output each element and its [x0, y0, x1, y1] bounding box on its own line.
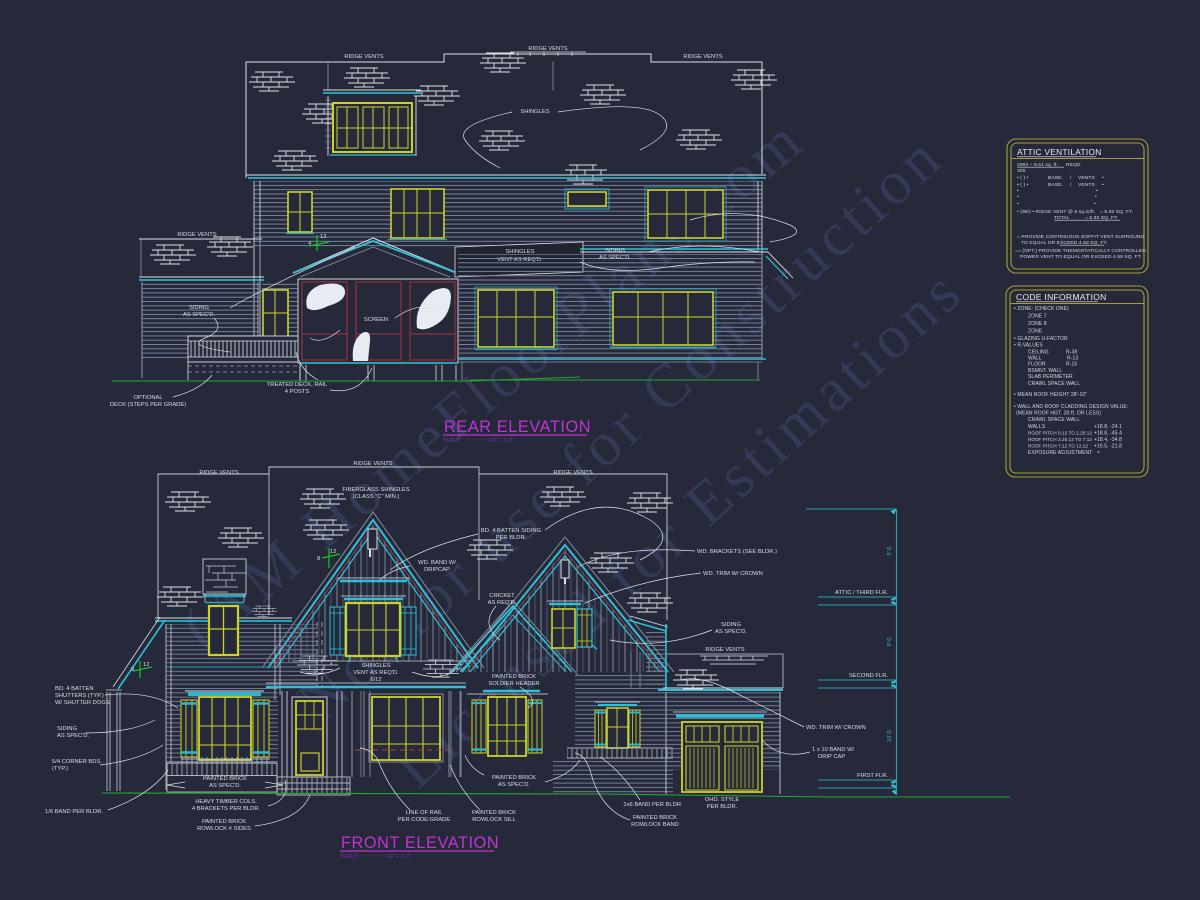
svg-text:FIRST FLR.: FIRST FLR.: [857, 773, 888, 779]
svg-text:R-15: R-15: [1066, 362, 1077, 368]
svg-text:+18.4, -34.8: +18.4, -34.8: [1094, 437, 1122, 443]
svg-text:WD. BAND W/: WD. BAND W/: [418, 560, 456, 566]
svg-text:SIDING: SIDING: [57, 726, 77, 732]
svg-text:PAINTED BRICK: PAINTED BRICK: [203, 776, 247, 782]
svg-text:WALLS: WALLS: [1028, 424, 1046, 430]
svg-text:ZONE 7: ZONE 7: [1028, 314, 1047, 320]
svg-text:300: 300: [1017, 168, 1026, 174]
svg-text:4 BRACKETS PER BLDR.: 4 BRACKETS PER BLDR.: [192, 806, 261, 812]
svg-text:W/ SHUTTER DOGS: W/ SHUTTER DOGS: [55, 700, 110, 706]
svg-text:+18.8, -45.4: +18.8, -45.4: [1094, 431, 1122, 437]
svg-text:SIDING: SIDING: [721, 622, 741, 628]
svg-text:•: •: [1017, 202, 1019, 207]
svg-text:ROOF PITCH 2.25:12 TO 7:12: ROOF PITCH 2.25:12 TO 7:12: [1028, 437, 1092, 442]
svg-text:ATTIC / THIRD FLR.: ATTIC / THIRD FLR.: [835, 590, 888, 596]
svg-text:PAINTED BRICK: PAINTED BRICK: [492, 674, 536, 680]
svg-text:CRICKET: CRICKET: [489, 593, 515, 599]
svg-text:+18.8, -24.1: +18.8, -24.1: [1094, 424, 1122, 430]
svg-text:8: 8: [317, 556, 320, 562]
svg-text:VENTS: VENTS: [1078, 175, 1095, 181]
svg-text:WD. TRIM W/ CROWN: WD. TRIM W/ CROWN: [703, 571, 763, 577]
svg-text:• R-VALUES: • R-VALUES: [1014, 343, 1043, 349]
svg-text:ROOF PITCH 0:12 TO 2.25:12: ROOF PITCH 0:12 TO 2.25:12: [1028, 431, 1092, 436]
svg-text:SHINGLES: SHINGLES: [520, 109, 549, 115]
svg-text:DRIP CAP: DRIP CAP: [818, 754, 845, 760]
svg-text:9'-0: 9'-0: [887, 638, 893, 647]
svg-text:AS SPEC'D.: AS SPEC'D.: [183, 312, 215, 318]
svg-text:•: •: [1094, 202, 1096, 207]
svg-text:RIDGE VENTS: RIDGE VENTS: [353, 461, 392, 467]
svg-text:9: 9: [131, 667, 134, 673]
svg-text:(TYP.): (TYP.): [52, 766, 68, 772]
svg-text:• MEAN ROOF HEIGHT 28'-10": • MEAN ROOF HEIGHT 28'-10": [1014, 392, 1087, 398]
svg-text:• ( ) •: • ( ) •: [1017, 175, 1029, 181]
svg-text:VENT AS REQ'D.: VENT AS REQ'D.: [353, 670, 399, 676]
svg-text:•: •: [1096, 189, 1098, 194]
svg-text:5/4 CORNER BDS.: 5/4 CORNER BDS.: [52, 759, 102, 765]
svg-text:ROWLOCK SILL: ROWLOCK SILL: [472, 817, 516, 823]
svg-text:(CLASS "C" MIN.): (CLASS "C" MIN.): [353, 494, 400, 500]
svg-text:PER BLDR.: PER BLDR.: [707, 804, 738, 810]
svg-text:CODE INFORMATION: CODE INFORMATION: [1016, 292, 1107, 302]
svg-text:TREATED DECK, RAIL: TREATED DECK, RAIL: [267, 382, 328, 388]
svg-text:ZONE: ZONE: [1028, 329, 1043, 335]
svg-text:SECOND FLR.: SECOND FLR.: [849, 673, 888, 679]
svg-text:PER BLDR.: PER BLDR.: [496, 535, 527, 541]
svg-text:BASE.: BASE.: [1048, 182, 1063, 188]
svg-text:BD. 4 BATTEN: BD. 4 BATTEN: [55, 686, 94, 692]
svg-text:REQD.: REQD.: [1066, 162, 1082, 168]
svg-text:PAINTED BRICK: PAINTED BRICK: [472, 810, 516, 816]
svg-text:RIDGE VENTS: RIDGE VENTS: [177, 232, 216, 238]
svg-text:POWER VENT TO EQUAL OR EXCEED: POWER VENT TO EQUAL OR EXCEED 4.58 SQ. F…: [1020, 254, 1142, 260]
svg-text:SLAB PERIMETER: SLAB PERIMETER: [1028, 374, 1073, 380]
svg-text:DRIPCAP: DRIPCAP: [424, 567, 450, 573]
svg-text:SHINGLES: SHINGLES: [361, 663, 390, 669]
svg-text:•: •: [1102, 183, 1104, 188]
svg-text:SCALE: ···············1/4" = 1: SCALE: ···············1/4" = 1'-0": [340, 854, 411, 860]
svg-text:RIDGE VENTS: RIDGE VENTS: [199, 470, 238, 476]
svg-text:DECK (STEPS PER GRADE): DECK (STEPS PER GRADE): [110, 402, 186, 408]
svg-text:ROOF PITCH 7:12 TO 12:12: ROOF PITCH 7:12 TO 12:12: [1028, 444, 1088, 449]
svg-text:OHD. STYLE: OHD. STYLE: [705, 797, 740, 803]
svg-text:1 x 10 BAND W/: 1 x 10 BAND W/: [812, 747, 855, 753]
svg-text:ZONE 8: ZONE 8: [1028, 321, 1047, 327]
svg-text:FLOOR: FLOOR: [1028, 362, 1046, 368]
svg-text:RIDGE VENTS: RIDGE VENTS: [528, 46, 567, 52]
svg-text:AS SPEC'D.: AS SPEC'D.: [599, 255, 631, 261]
svg-text:CRAWL SPACE WALL: CRAWL SPACE WALL: [1028, 417, 1080, 423]
svg-text:LINE OF RAIL: LINE OF RAIL: [405, 810, 443, 816]
svg-text:•: •: [1017, 189, 1019, 194]
svg-text:• GLAZING U-FACTOR: • GLAZING U-FACTOR: [1014, 336, 1068, 342]
svg-text:= PROVIDE CONTINUOUS SOFFIT VE: = PROVIDE CONTINUOUS SOFFIT VENT SURROUN…: [1017, 234, 1145, 240]
svg-text:HEAVY TIMBER COLS.: HEAVY TIMBER COLS.: [195, 799, 257, 805]
svg-text:EXPOSURE ADJUSTMENT: EXPOSURE ADJUSTMENT: [1028, 450, 1092, 456]
svg-text:5'-0: 5'-0: [887, 547, 893, 556]
svg-text:4 POSTS: 4 POSTS: [285, 389, 310, 395]
svg-text:12: 12: [330, 549, 336, 555]
svg-text:AS SPEC'D.: AS SPEC'D.: [498, 782, 530, 788]
svg-text:== (OPT.) PROVIDE THEMOSTATICA: == (OPT.) PROVIDE THEMOSTATICALLY CONTRO…: [1015, 248, 1146, 254]
svg-text:AS SPEC'D.: AS SPEC'D.: [715, 629, 747, 635]
svg-text:SCREEN: SCREEN: [364, 317, 388, 323]
svg-text:WD. TRIM W/ CROWN: WD. TRIM W/ CROWN: [806, 725, 866, 731]
svg-text:ATTIC VENTILATION: ATTIC VENTILATION: [1017, 147, 1102, 157]
svg-text:SOLDIER HEADER: SOLDIER HEADER: [488, 681, 539, 687]
svg-text:SIDING: SIDING: [189, 305, 209, 311]
svg-text:10'-0: 10'-0: [887, 730, 893, 741]
svg-text:PAINTED BRICK: PAINTED BRICK: [633, 815, 677, 821]
svg-text:1/6 BAND PER BLDR.: 1/6 BAND PER BLDR.: [45, 809, 103, 815]
svg-text:• (95/) • RIDGE VENT @ 9 sq.in: • (95/) • RIDGE VENT @ 9 sq.in/ft.: [1017, 209, 1095, 215]
svg-text:RIDGE VENTS: RIDGE VENTS: [553, 470, 592, 476]
svg-text:(MEAN ROOF HGT. 30 ft. OR LESS: (MEAN ROOF HGT. 30 ft. OR LESS): [1016, 411, 1101, 417]
svg-text:PAINTED BRICK: PAINTED BRICK: [492, 775, 536, 781]
svg-text:• ZONE: (CHECK ONE): • ZONE: (CHECK ONE): [1014, 306, 1069, 312]
svg-text:SCALE: ···············1/4" = 1: SCALE: ···············1/4" = 1'-0": [443, 438, 514, 444]
svg-text:AS SPEC'D.: AS SPEC'D.: [57, 733, 89, 739]
svg-text:AS SPEC'D.: AS SPEC'D.: [209, 783, 241, 789]
svg-text:OPTIONAL: OPTIONAL: [133, 395, 163, 401]
svg-text:• WALL AND ROOF CLADDING DESIG: • WALL AND ROOF CLADDING DESIGN VALUE:: [1014, 404, 1128, 410]
svg-text:BD. 4 BATTEN SIDING: BD. 4 BATTEN SIDING: [481, 528, 542, 534]
svg-text:CRAWL SPACE WALL: CRAWL SPACE WALL: [1028, 381, 1080, 387]
svg-text:×: ×: [1097, 450, 1100, 456]
svg-text:12: 12: [143, 662, 149, 668]
svg-text:ROWLOCK # SIDES: ROWLOCK # SIDES: [197, 826, 251, 832]
svg-text:PAINTED BRICK: PAINTED BRICK: [202, 819, 246, 825]
svg-text:6/12: 6/12: [370, 677, 381, 683]
svg-text:REAR ELEVATION: REAR ELEVATION: [444, 418, 591, 436]
svg-text:•: •: [1095, 195, 1097, 200]
svg-text:RIDGE VENTS: RIDGE VENTS: [344, 54, 383, 60]
svg-text:BASE.: BASE.: [1048, 175, 1063, 181]
svg-text:FRONT ELEVATION: FRONT ELEVATION: [341, 834, 499, 852]
svg-text:+16.5, -21.8: +16.5, -21.8: [1094, 444, 1122, 450]
svg-text:1x6 BAND PER BLDR.: 1x6 BAND PER BLDR.: [623, 802, 683, 808]
svg-text:RIDGE VENTS: RIDGE VENTS: [683, 54, 722, 60]
svg-text:12: 12: [320, 234, 326, 240]
svg-text:•: •: [1102, 176, 1104, 181]
svg-text:FIBERGLASS SHINGLES: FIBERGLASS SHINGLES: [342, 487, 409, 493]
svg-text:SHUTTERS (TYP.): SHUTTERS (TYP.): [55, 693, 104, 699]
svg-text:ROWLOCK BAND: ROWLOCK BAND: [631, 822, 679, 828]
svg-text:PER CODE:GRADE: PER CODE:GRADE: [398, 817, 451, 823]
svg-text:AS REQ'D.: AS REQ'D.: [488, 600, 517, 606]
svg-text:VENTS: VENTS: [1078, 182, 1095, 188]
svg-text:• ( ) •: • ( ) •: [1017, 182, 1029, 188]
svg-text:•: •: [1017, 195, 1019, 200]
svg-text:SIDING: SIDING: [605, 248, 625, 254]
svg-text:RIDGE VENTS: RIDGE VENTS: [705, 647, 744, 653]
svg-text:= 5.93 SQ. FT.: = 5.93 SQ. FT.: [1100, 209, 1133, 215]
svg-text:WD. BRACKETS (SEE BLDR.): WD. BRACKETS (SEE BLDR.): [697, 549, 777, 555]
